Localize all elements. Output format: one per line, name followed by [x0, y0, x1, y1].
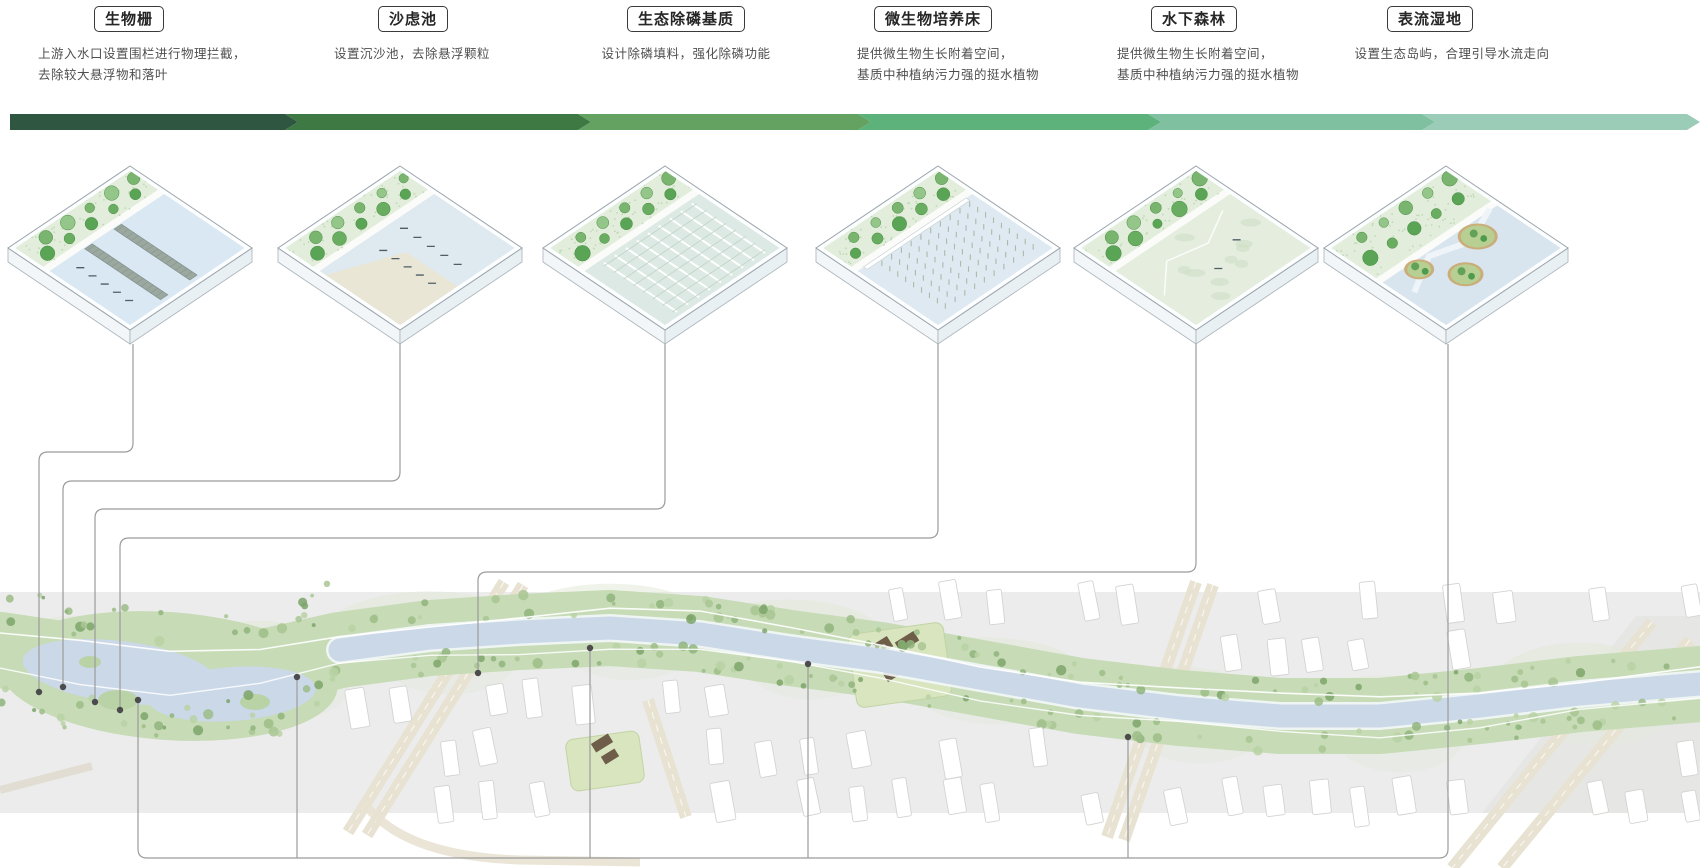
axon-illustration-1 — [8, 166, 252, 344]
process-flow-arrow — [10, 114, 1700, 130]
site-plan — [0, 579, 1700, 868]
axon-illustration-2 — [278, 166, 522, 344]
axon-illustration-5 — [1074, 166, 1318, 344]
infographic-page: 生物栅 上游入水口设置围栏进行物理拦截， 去除较大悬浮物和落叶 沙虑池 设置沉沙… — [0, 0, 1700, 868]
diagram-canvas — [0, 0, 1700, 868]
axon-illustration-3 — [543, 166, 787, 344]
axon-illustration-4 — [816, 166, 1060, 344]
axon-illustration-6 — [1324, 166, 1568, 344]
